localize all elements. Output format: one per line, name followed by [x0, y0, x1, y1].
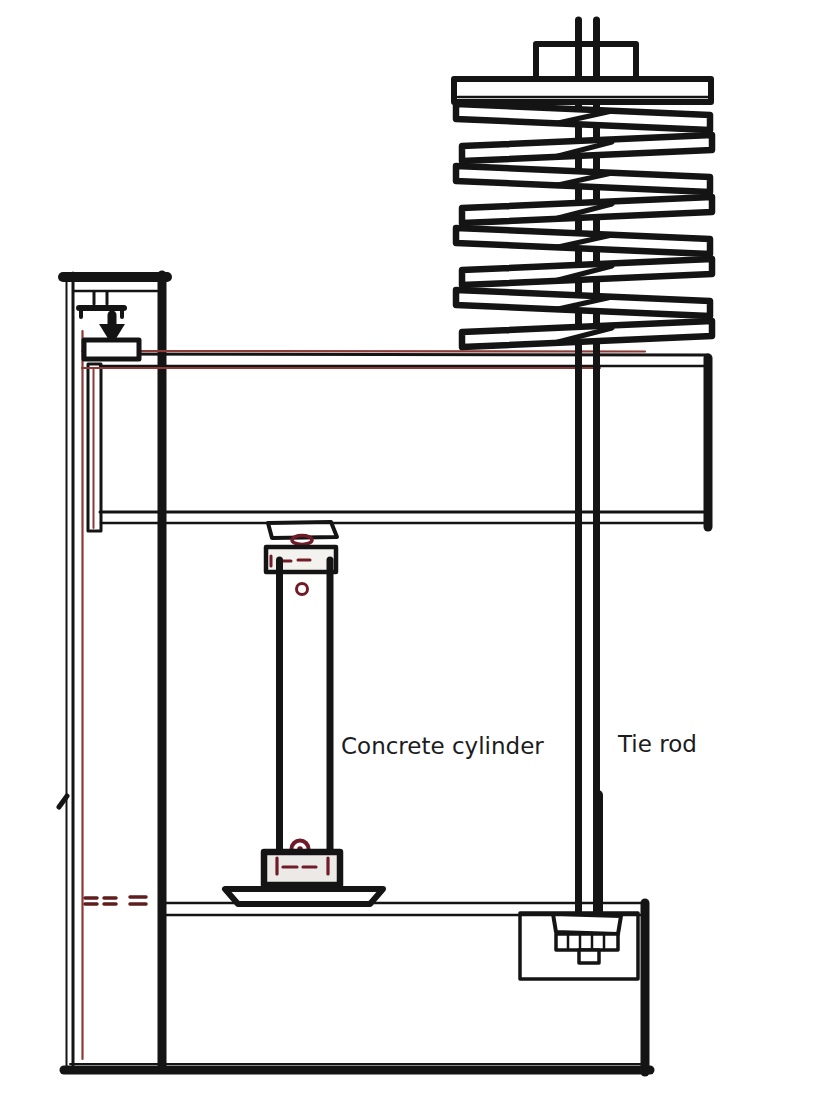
spring-top-plate: [454, 79, 711, 102]
retaining-nut: [536, 44, 636, 80]
disc-spring-stack: [454, 44, 712, 347]
cross-beam: [85, 354, 708, 531]
anchor-nut-body: [556, 934, 618, 950]
reaction-column: [59, 273, 167, 1069]
trace-beam-top: [82, 351, 645, 352]
concrete-cylinder-assembly: [225, 522, 383, 904]
jack-bearing-bar: [79, 308, 124, 317]
creep-rig-sketch: Concrete cylinder Tie rod: [0, 0, 834, 1113]
anchor-rod-end: [579, 950, 599, 963]
anchor-nut: [553, 914, 621, 963]
screw-jack: [84, 315, 139, 359]
label-tie-rod: Tie rod: [617, 731, 697, 757]
diagram-canvas: Concrete cylinder Tie rod: [0, 0, 834, 1113]
base-joint-dashes: [85, 897, 146, 904]
jack-block: [84, 340, 139, 359]
anchor-washer-plate: [553, 914, 621, 934]
base-dish-plate: [225, 889, 383, 904]
label-concrete-cylinder: Concrete cylinder: [341, 733, 544, 759]
spherical-seat: [292, 536, 312, 545]
gauge-point-top: [297, 584, 308, 595]
disc-springs: [456, 104, 712, 347]
